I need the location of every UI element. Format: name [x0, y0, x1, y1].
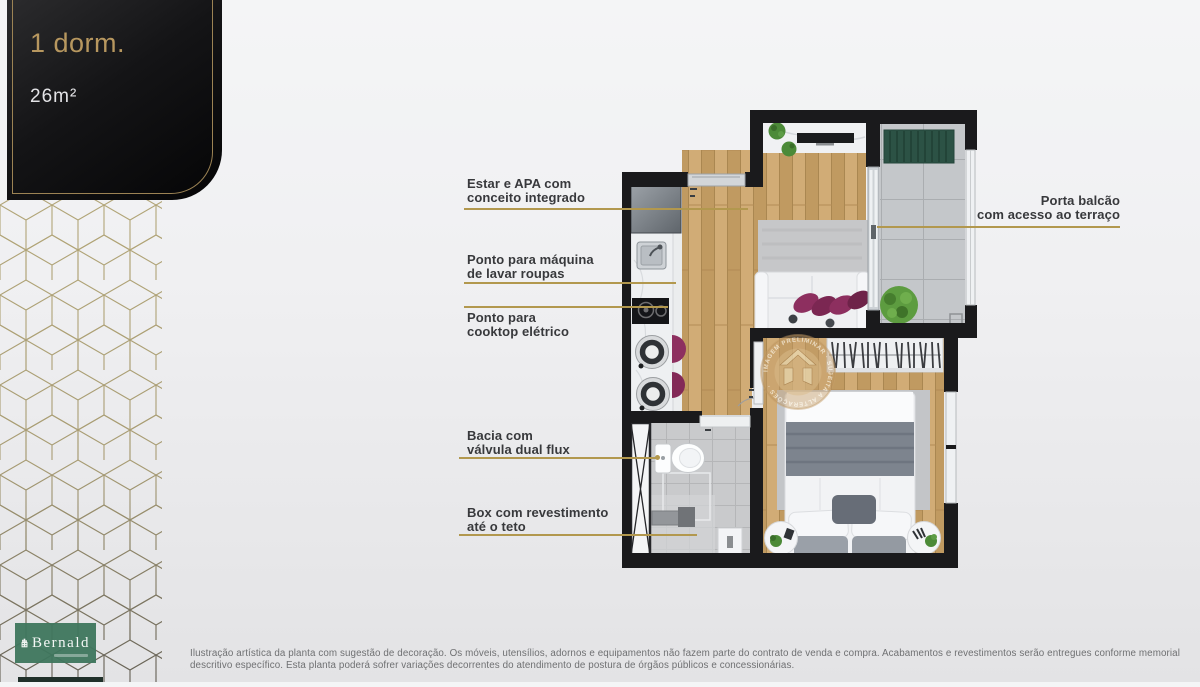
terrace-bench	[884, 130, 954, 163]
disclaimer-text: Ilustração artística da planta com suges…	[190, 648, 1190, 672]
brand-name: Bernald	[32, 635, 90, 652]
callout-balcao: Porta balcãocom acesso ao terraço	[977, 194, 1120, 221]
unit-area: 26m²	[30, 86, 77, 108]
side-table	[765, 522, 798, 555]
bathroom-door	[700, 416, 750, 427]
tv-panel	[797, 133, 854, 143]
callout-dot	[655, 455, 660, 460]
plant	[782, 142, 797, 157]
callout-line-box	[459, 534, 697, 536]
shower-bench	[652, 511, 682, 525]
balcony-door-handle	[871, 225, 876, 239]
geometric-pattern	[0, 190, 162, 682]
unit-badge: 1 dorm. 26m²	[7, 0, 222, 200]
callout-bacia: Bacia comválvula dual flux	[467, 429, 570, 456]
callout-box: Box com revestimentoaté o teto	[467, 506, 608, 533]
callout-line-bacia	[459, 457, 657, 459]
callout-line-cooktop	[464, 306, 668, 308]
callout-cooktop: Ponto paracooktop elétrico	[467, 311, 569, 338]
shower-fixture	[678, 507, 695, 527]
callout-maquina: Ponto para máquinade lavar roupas	[467, 253, 594, 280]
accent-pillow	[832, 495, 876, 524]
plant	[880, 286, 918, 324]
bed	[785, 392, 915, 561]
callout-line-estar	[464, 208, 748, 210]
floor-plan: IMAGEM PRELIMINAR · SUJEITA A ALTERAÇÕES…	[620, 100, 980, 580]
toilet	[655, 444, 705, 474]
cooktop	[632, 298, 669, 324]
callout-line-balcao	[877, 226, 1120, 228]
bottom-edge-element	[18, 677, 103, 682]
kitchen-cabinet	[631, 186, 681, 233]
callout-estar: Estar e APA comconceito integrado	[467, 177, 585, 204]
callout-line-maquina	[464, 282, 676, 284]
entry-door	[688, 174, 745, 186]
sofa	[755, 272, 874, 332]
building-icon	[21, 634, 28, 652]
brand-logo: Bernald	[15, 623, 96, 663]
side-table	[908, 522, 941, 555]
corridor-floor	[682, 328, 752, 415]
unit-type: 1 dorm.	[30, 28, 125, 59]
plant	[769, 123, 786, 140]
brand-tagline	[54, 654, 88, 657]
watermark-stamp: IMAGEM PRELIMINAR · SUJEITA A ALTERAÇÕES…	[760, 334, 836, 410]
